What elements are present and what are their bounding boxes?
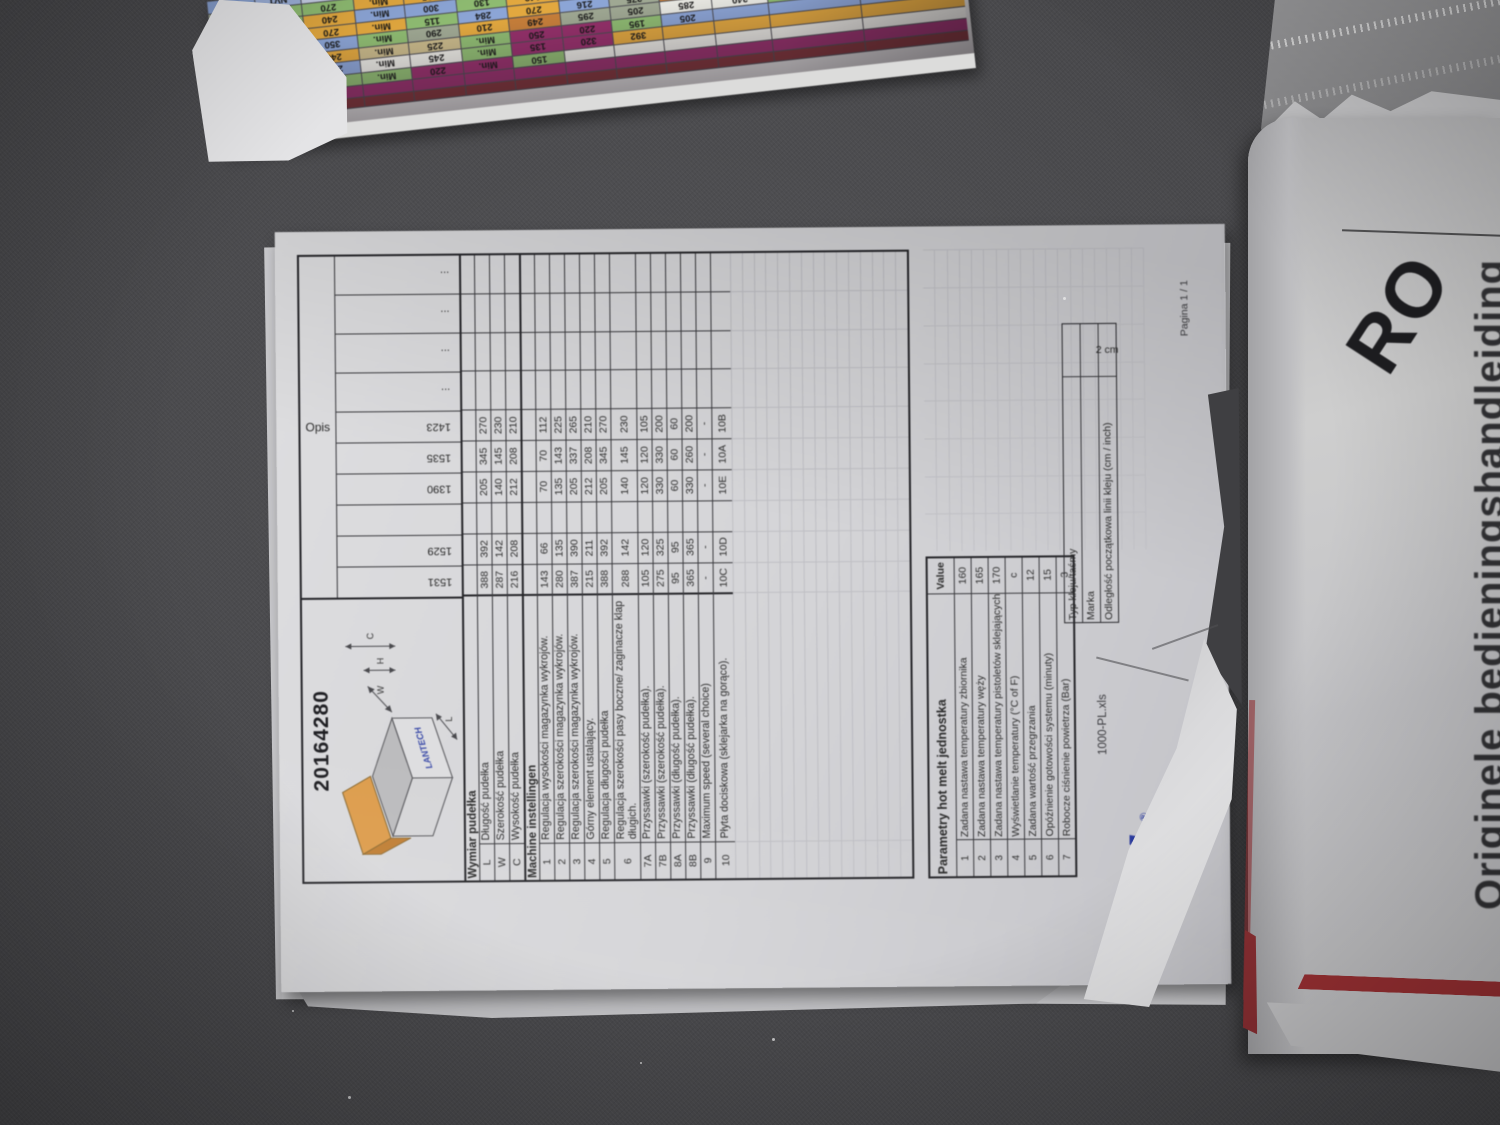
- value-cell: [898, 529, 909, 560]
- value-cell: 208: [507, 533, 521, 564]
- color-table-cell: [862, 6, 967, 30]
- row-value: c: [1006, 558, 1022, 593]
- column-header: 1531: [338, 566, 462, 598]
- value-cell: [852, 561, 863, 592]
- value-cell: 135: [552, 532, 566, 563]
- value-cell: [886, 499, 897, 530]
- value-cell: [610, 254, 635, 292]
- value-cell: 265: [566, 409, 580, 440]
- value-cell: [886, 468, 897, 499]
- row-label: Regulacja wysokości magazynka wykrojów.: [538, 594, 554, 843]
- value-cell: [769, 530, 780, 561]
- row-index: 1: [957, 839, 973, 876]
- value-cell: [521, 255, 534, 293]
- value-cell: 270: [596, 408, 610, 439]
- value-cell: 10C: [714, 562, 733, 593]
- value-cell: [828, 561, 839, 592]
- value-cell: [461, 293, 474, 332]
- value-cell: -: [697, 408, 711, 439]
- color-table-cell: [566, 69, 617, 84]
- value-cell: [754, 253, 765, 291]
- machine-settings-table: 20164280 LANTECH C H: [297, 250, 914, 884]
- value-cell: [850, 329, 861, 368]
- value-cell: 390: [567, 532, 581, 563]
- value-cell: 120: [638, 439, 652, 470]
- color-table-cell: 210: [458, 19, 509, 37]
- value-cell: [898, 437, 909, 468]
- value-cell: [733, 469, 744, 500]
- value-cell: 200: [652, 408, 666, 439]
- hot-melt-row: 5Zadana wartość przegrzania12: [1022, 558, 1042, 876]
- value-cell: [505, 255, 519, 293]
- floor-speck: [640, 1062, 642, 1064]
- value-cell: [462, 371, 475, 410]
- color-table-cell: Min.: [459, 31, 510, 49]
- value-cell: 142: [492, 533, 506, 564]
- photo-of-documents-on-floor: { "main_document": { "title": "20164280"…: [0, 0, 1500, 1125]
- value-cell: [666, 254, 680, 292]
- color-table-cell: [772, 30, 865, 52]
- hot-melt-header: Parametry hot melt jednostka: [928, 593, 956, 876]
- value-cell: [463, 502, 476, 533]
- value-cell: [851, 468, 862, 499]
- color-table-cell: [362, 80, 413, 97]
- value-cell: [565, 254, 579, 292]
- value-cell: [803, 407, 814, 438]
- value-cell: [767, 368, 778, 407]
- value-cell: [863, 499, 874, 530]
- value-cell: 10D: [713, 531, 732, 562]
- value-cell: [874, 406, 885, 437]
- value-cell: [849, 252, 860, 290]
- value-cell: [814, 329, 825, 368]
- row-label: Robocze ciśnienie powietrza (Bar): [1057, 592, 1075, 838]
- row-index: 5: [1025, 838, 1041, 875]
- value-cell: 145: [612, 439, 637, 470]
- value-cell: [768, 407, 779, 438]
- value-cell: [862, 437, 873, 468]
- color-table-cell: 115: [405, 12, 458, 30]
- color-table-cell: 285: [659, 0, 712, 15]
- value-cell: [790, 290, 801, 329]
- value-cell: [743, 253, 754, 291]
- column-header: ...: [335, 294, 459, 334]
- row-index: 3: [570, 843, 584, 880]
- row-label: Zadana nastawa temperatury pistoletów sk…: [989, 593, 1007, 839]
- row-label: Przyssawki (szerokość pudełka).: [654, 593, 670, 842]
- value-cell: [792, 530, 803, 561]
- row-index: 6: [615, 842, 640, 879]
- value-cell: [839, 499, 850, 530]
- color-table-cell: 250: [657, 0, 710, 2]
- value-cell: [839, 468, 850, 499]
- value-cell: [637, 330, 651, 369]
- value-cell: 70: [537, 440, 551, 471]
- value-cell: 208: [582, 439, 596, 470]
- row-label: Opóźnienie gotowości systemu (minuty): [1040, 592, 1058, 838]
- value-cell: [681, 291, 695, 330]
- value-cell: [522, 331, 535, 370]
- value-cell: 112: [536, 409, 550, 440]
- value-cell: [682, 330, 696, 369]
- value-cell: [476, 371, 490, 410]
- color-table-cell: [715, 28, 772, 47]
- color-table-cell: Min.: [354, 5, 405, 23]
- row-label: Przyssawki (długość pudełka).: [684, 593, 700, 842]
- color-table-cell: 220: [561, 20, 612, 38]
- value-cell: [816, 530, 827, 561]
- value-cell: [874, 468, 885, 499]
- value-cell: [463, 471, 476, 502]
- value-cell: [802, 252, 813, 290]
- value-cell: [636, 254, 650, 292]
- value-cell: [477, 502, 491, 533]
- value-cell: [732, 368, 743, 407]
- glue-row-label: Typ kleju/taśmy: [1063, 376, 1082, 622]
- value-cell: [828, 530, 839, 561]
- color-table-cell: 240: [711, 0, 768, 9]
- value-cell: 66: [537, 532, 551, 563]
- row-index: 4: [1008, 839, 1024, 876]
- value-cell: [885, 367, 896, 406]
- value-cell: [827, 406, 838, 437]
- value-cell: [778, 290, 789, 329]
- value-cell: [861, 329, 872, 368]
- value-cell: [667, 369, 681, 408]
- color-table-cell: [513, 63, 566, 81]
- value-cell: [712, 369, 731, 408]
- value-cell: [804, 468, 815, 499]
- value-cell: [816, 499, 827, 530]
- value-cell: [683, 500, 697, 531]
- value-cell: [863, 468, 874, 499]
- value-cell: [778, 253, 789, 291]
- color-table-row: 10ANVT240Min.300130149388210270115500328…: [209, 0, 964, 39]
- value-cell: [463, 440, 476, 471]
- value-cell: [461, 255, 474, 293]
- column-header: ...: [336, 333, 460, 373]
- value-cell: [745, 561, 756, 592]
- color-table-cell: [863, 19, 968, 42]
- color-table-cell: [363, 92, 414, 107]
- value-cell: 145: [492, 440, 506, 471]
- column-header: 1535: [337, 442, 461, 474]
- value-cell: [873, 367, 884, 406]
- value-cell: [611, 331, 636, 370]
- value-cell: [803, 368, 814, 407]
- color-table-cell: 195: [611, 15, 662, 33]
- value-cell: [873, 290, 884, 329]
- value-cell: 120: [638, 532, 652, 563]
- value-cell: [566, 370, 580, 409]
- value-cell: [491, 371, 505, 410]
- value-cell: 140: [492, 471, 506, 502]
- value-cell: [804, 499, 815, 530]
- value-cell: 10E: [713, 469, 732, 500]
- value-cell: [462, 410, 475, 441]
- value-cell: [731, 253, 742, 291]
- value-cell: -: [699, 562, 713, 593]
- row-index: 2: [974, 839, 990, 876]
- value-cell: [636, 292, 650, 331]
- value-cell: [611, 369, 636, 408]
- color-table-cell: 220: [410, 62, 463, 80]
- value-cell: [756, 407, 767, 438]
- color-table-cell: [515, 75, 568, 91]
- value-cell: [733, 438, 744, 469]
- value-cell: [523, 440, 536, 471]
- column-header: 1390: [337, 473, 461, 505]
- value-cell: [653, 501, 667, 532]
- color-table-cell: Min.: [358, 43, 409, 61]
- value-cell: [804, 561, 815, 592]
- value-cell: [552, 501, 566, 532]
- value-cell: -: [698, 438, 712, 469]
- dim-label-l: L: [444, 717, 454, 722]
- table-row: 6Regulacja szerokości pasy boczne/ zagin…: [609, 254, 640, 879]
- plastic-sleeve-manual: [1248, 118, 1500, 1054]
- value-cell: [711, 291, 730, 330]
- value-cell: [814, 290, 825, 329]
- value-cell: 212: [507, 471, 521, 502]
- value-cell: [826, 329, 837, 368]
- value-cell: [875, 529, 886, 560]
- value-cell: [851, 499, 862, 530]
- value-cell: [713, 500, 732, 531]
- value-cell: [551, 331, 565, 370]
- order-number: 20164280: [309, 600, 335, 882]
- value-cell: [567, 501, 581, 532]
- value-cell: [596, 331, 610, 370]
- glue-row-label: Marka: [1081, 376, 1100, 622]
- value-cell: [490, 293, 504, 332]
- floor-speck: [1063, 297, 1066, 300]
- color-table-cell: Min.: [359, 55, 410, 73]
- row-label: Maximum speed (several choice): [699, 593, 715, 842]
- value-cell: [743, 291, 754, 330]
- value-cell: [595, 292, 609, 331]
- value-cell: 388: [478, 564, 492, 595]
- color-table-cell: 205: [609, 2, 660, 20]
- row-label: Wyświetlanie temperatury (°C of F): [1006, 593, 1024, 839]
- color-table-cell: [769, 5, 862, 28]
- value-cell: 345: [477, 440, 491, 471]
- value-cell: [536, 370, 550, 409]
- value-cell: [492, 502, 506, 533]
- value-cell: 200: [682, 408, 696, 439]
- value-cell: 230: [611, 408, 636, 439]
- value-cell: 210: [506, 409, 520, 440]
- file-name: 1000-PL.xls: [1097, 694, 1110, 755]
- value-cell: 60: [668, 470, 682, 501]
- value-cell: 212: [582, 470, 596, 501]
- hot-melt-row: 2Zadana nastawa temperatury węży165: [971, 558, 991, 876]
- color-table-cell: [713, 15, 770, 34]
- value-cell: 10B: [712, 407, 731, 438]
- value-cell: [781, 561, 792, 592]
- value-cell: 215: [583, 563, 597, 594]
- value-cell: [711, 253, 730, 291]
- value-cell: [838, 329, 849, 368]
- table-body: Wymiar pudełkaLDługość pudełka3883922053…: [459, 252, 912, 881]
- value-cell: 225: [551, 409, 565, 440]
- value-cell: [550, 255, 564, 293]
- value-cell: [838, 406, 849, 437]
- color-table-cell: [662, 22, 715, 40]
- hot-melt-rows: 1Zadana nastawa temperatury zbiornika160…: [955, 557, 1076, 876]
- value-cell: [464, 564, 477, 595]
- color-table-cell: [864, 31, 968, 52]
- glue-row: Typ kleju/taśmy: [1063, 324, 1083, 622]
- value-cell: [756, 438, 767, 469]
- value-cell: [757, 531, 768, 562]
- value-cell: [757, 500, 768, 531]
- row-index: 3: [991, 839, 1007, 876]
- color-table-cell: [773, 42, 866, 62]
- value-cell: [885, 328, 896, 367]
- value-cell: [791, 407, 802, 438]
- value-cell: [802, 329, 813, 368]
- dim-label-c: C: [365, 632, 375, 639]
- row-label: Szerokość pudełka: [493, 595, 509, 844]
- value-cell: [490, 255, 504, 293]
- color-table-cell: 295: [559, 8, 610, 26]
- value-cell: [827, 499, 838, 530]
- spec-sheet-page: 20164280 LANTECH C H: [275, 224, 1232, 992]
- value-cell: [814, 368, 825, 407]
- value-cell: [595, 254, 609, 292]
- value-cell: [757, 561, 768, 592]
- row-index: C: [510, 843, 524, 880]
- row-label: Regulacja długości pudełka: [598, 594, 614, 843]
- color-table-cell: [712, 3, 769, 22]
- value-cell: [792, 438, 803, 469]
- glue-row-value: 2 cm: [1099, 324, 1116, 376]
- value-cell: [756, 469, 767, 500]
- value-cell: [791, 329, 802, 368]
- color-table-cell: 392: [612, 27, 663, 45]
- color-table-cell: 290: [406, 25, 459, 43]
- value-cell: [898, 498, 909, 529]
- column-header: ...: [335, 256, 459, 295]
- value-cell: [793, 561, 804, 592]
- value-cell: [862, 367, 873, 406]
- row-index: 1: [540, 843, 554, 880]
- color-table-cell: 300: [404, 0, 457, 18]
- value-cell: [826, 290, 837, 329]
- color-table-cell: [766, 0, 859, 3]
- value-cell: [536, 331, 550, 370]
- value-cell: [779, 329, 790, 368]
- value-cell: 330: [683, 469, 697, 500]
- value-cell: [732, 407, 743, 438]
- value-cell: [476, 332, 490, 371]
- value-cell: [767, 291, 778, 330]
- value-cell: 330: [653, 470, 667, 501]
- value-cell: [551, 370, 565, 409]
- value-cell: [745, 531, 756, 562]
- value-cell: 135: [552, 471, 566, 502]
- value-cell: [651, 254, 665, 292]
- value-cell: [863, 560, 874, 591]
- row-label: Zadana nastawa temperatury węży: [972, 593, 990, 839]
- value-cell: 142: [612, 532, 637, 563]
- value-cell: [780, 438, 791, 469]
- value-cell: [550, 292, 564, 331]
- value-cell: [506, 332, 520, 371]
- value-cell: [898, 468, 909, 499]
- value-cell: [731, 291, 742, 330]
- value-cell: [565, 292, 579, 331]
- value-cell: [827, 468, 838, 499]
- value-cell: [637, 369, 651, 408]
- color-table-cell: [768, 0, 861, 15]
- value-cell: [887, 529, 898, 560]
- value-cell: [839, 437, 850, 468]
- value-cell: [732, 330, 743, 369]
- value-cell: 288: [613, 563, 638, 594]
- row-label: Wysokość pudełka: [508, 594, 524, 843]
- value-cell: [756, 368, 767, 407]
- value-cell: [744, 438, 755, 469]
- value-cell: 143: [552, 440, 566, 471]
- value-cell: [612, 501, 637, 532]
- value-cell: [825, 252, 836, 290]
- row-value: 160: [955, 558, 971, 593]
- color-table-cell: [666, 58, 719, 74]
- color-table-cell: Min.: [462, 56, 513, 74]
- value-cell: 330: [653, 439, 667, 470]
- value-cell: [755, 329, 766, 368]
- value-cell: [667, 330, 681, 369]
- value-cell: [581, 331, 595, 370]
- value-cell: [779, 407, 790, 438]
- row-index: 5: [600, 842, 614, 879]
- color-table-cell: [859, 0, 964, 5]
- section-header: Machine instellingen: [524, 594, 539, 880]
- value-cell: 60: [667, 408, 681, 439]
- color-table-cell: 270: [301, 0, 354, 17]
- dim-label-h: H: [375, 658, 385, 665]
- value-cell: [755, 291, 766, 330]
- row-index: 2: [555, 843, 569, 880]
- value-cell: 337: [567, 440, 581, 471]
- color-table-cell: [664, 46, 717, 64]
- value-cell: [733, 500, 744, 531]
- color-table-row: 10GNVT270Min.225Min.14934521038710050032…: [207, 0, 962, 27]
- row-value: 12: [1023, 558, 1039, 593]
- value-cell: [475, 255, 489, 293]
- value-cell: [861, 290, 872, 329]
- value-cell: [768, 438, 779, 469]
- value-cell: [505, 293, 519, 332]
- color-table-cell: [564, 45, 615, 63]
- value-cell: [897, 406, 908, 437]
- row-label: Zadana nastawa temperatury zbiornika: [955, 593, 973, 839]
- value-cell: [875, 499, 886, 530]
- value-cell: [792, 468, 803, 499]
- value-cell: [779, 368, 790, 407]
- value-cell: 120: [638, 470, 652, 501]
- row-label: Regulacja szerokości magazynka wykrojów.: [568, 594, 584, 843]
- value-cell: [897, 328, 908, 367]
- value-cell: [535, 255, 549, 293]
- glue-info-rows: Typ kleju/taśmyMarkaOdległość początkowa…: [1062, 323, 1120, 623]
- row-value: 170: [989, 558, 1005, 593]
- value-cell: [767, 329, 778, 368]
- color-table-cell: [663, 34, 716, 52]
- value-cell: [850, 367, 861, 406]
